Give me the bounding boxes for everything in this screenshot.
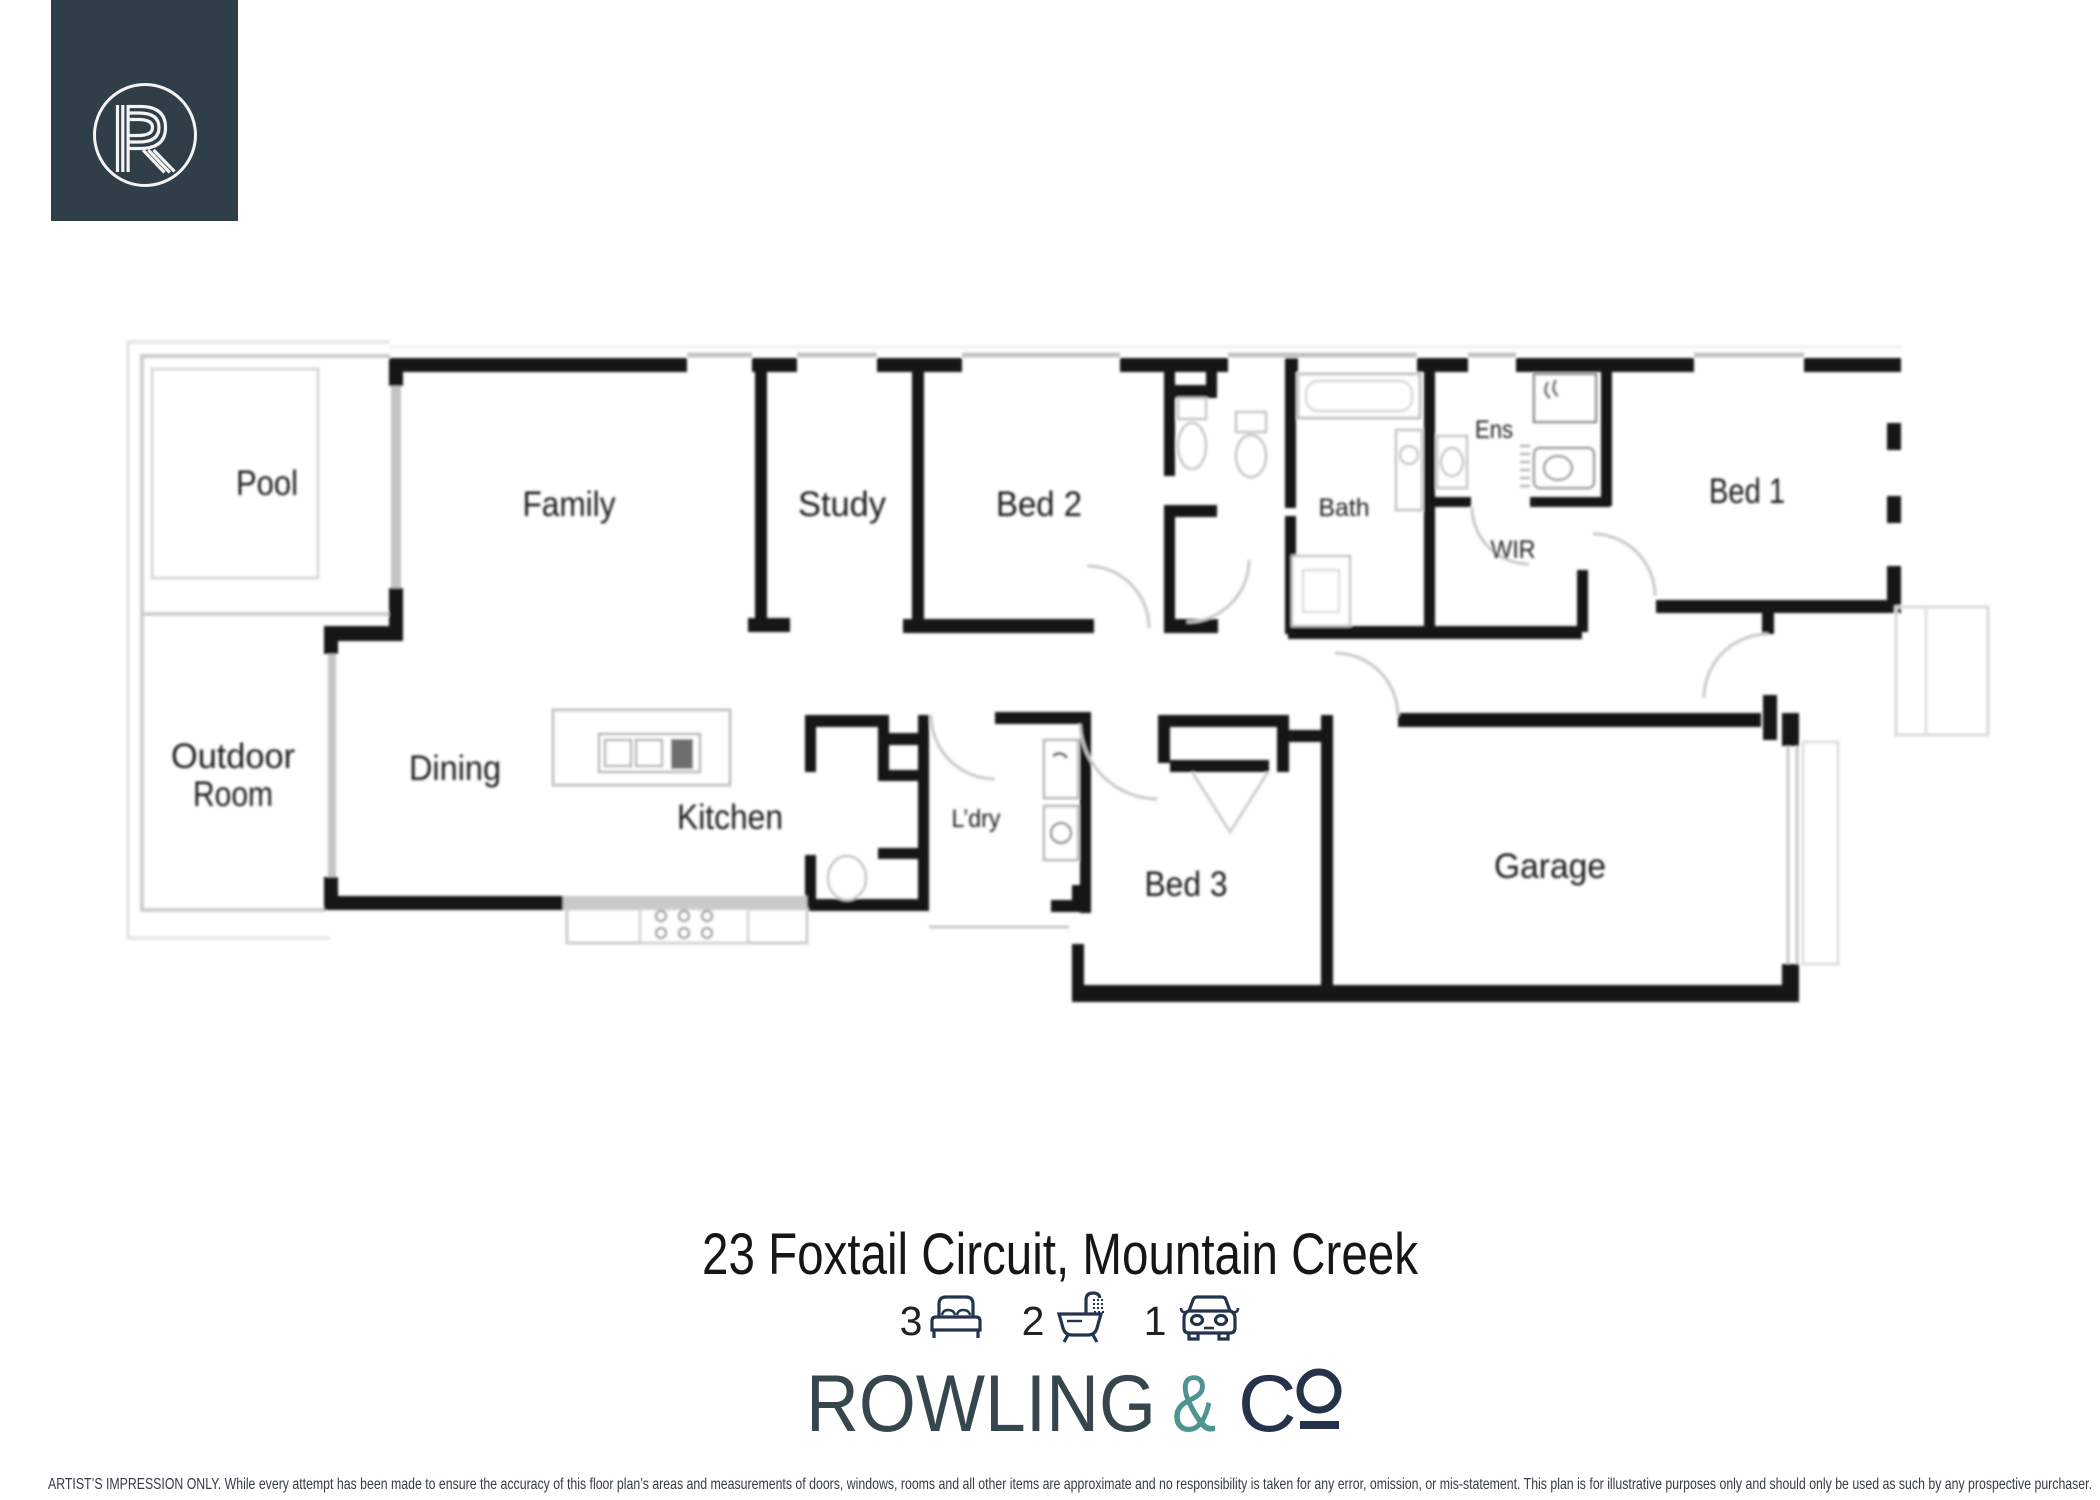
svg-text:Garage: Garage: [1494, 847, 1606, 886]
svg-text:Bed 3: Bed 3: [1145, 865, 1228, 904]
svg-text:23 Foxtail Circuit, Mountain C: 23 Foxtail Circuit, Mountain Creek: [702, 1222, 1419, 1287]
svg-text:ARTIST’S IMPRESSION ONLY. Whil: ARTIST’S IMPRESSION ONLY. While every at…: [48, 1476, 2092, 1493]
svg-text:Kitchen: Kitchen: [677, 798, 783, 837]
svg-text:Bed 2: Bed 2: [996, 485, 1082, 524]
svg-text:Family: Family: [523, 485, 616, 524]
svg-text:Pool: Pool: [236, 464, 298, 503]
svg-text:WIR: WIR: [1491, 536, 1536, 564]
svg-text:Bath: Bath: [1319, 494, 1370, 522]
svg-text:Dining: Dining: [409, 749, 501, 788]
svg-text:Outdoor: Outdoor: [171, 737, 295, 776]
svg-text:Room: Room: [193, 775, 273, 814]
svg-text:Study: Study: [798, 485, 886, 524]
svg-text:&: &: [1172, 1359, 1216, 1449]
svg-text:Bed 1: Bed 1: [1709, 472, 1785, 511]
svg-text:Ens: Ens: [1475, 416, 1513, 444]
svg-text:L’dry: L’dry: [952, 805, 1001, 833]
svg-text:2: 2: [1022, 1298, 1045, 1344]
svg-text:1: 1: [1144, 1298, 1167, 1344]
svg-text:ROWLING: ROWLING: [806, 1359, 1156, 1449]
svg-text:C: C: [1238, 1359, 1297, 1449]
svg-text:3: 3: [900, 1298, 923, 1344]
